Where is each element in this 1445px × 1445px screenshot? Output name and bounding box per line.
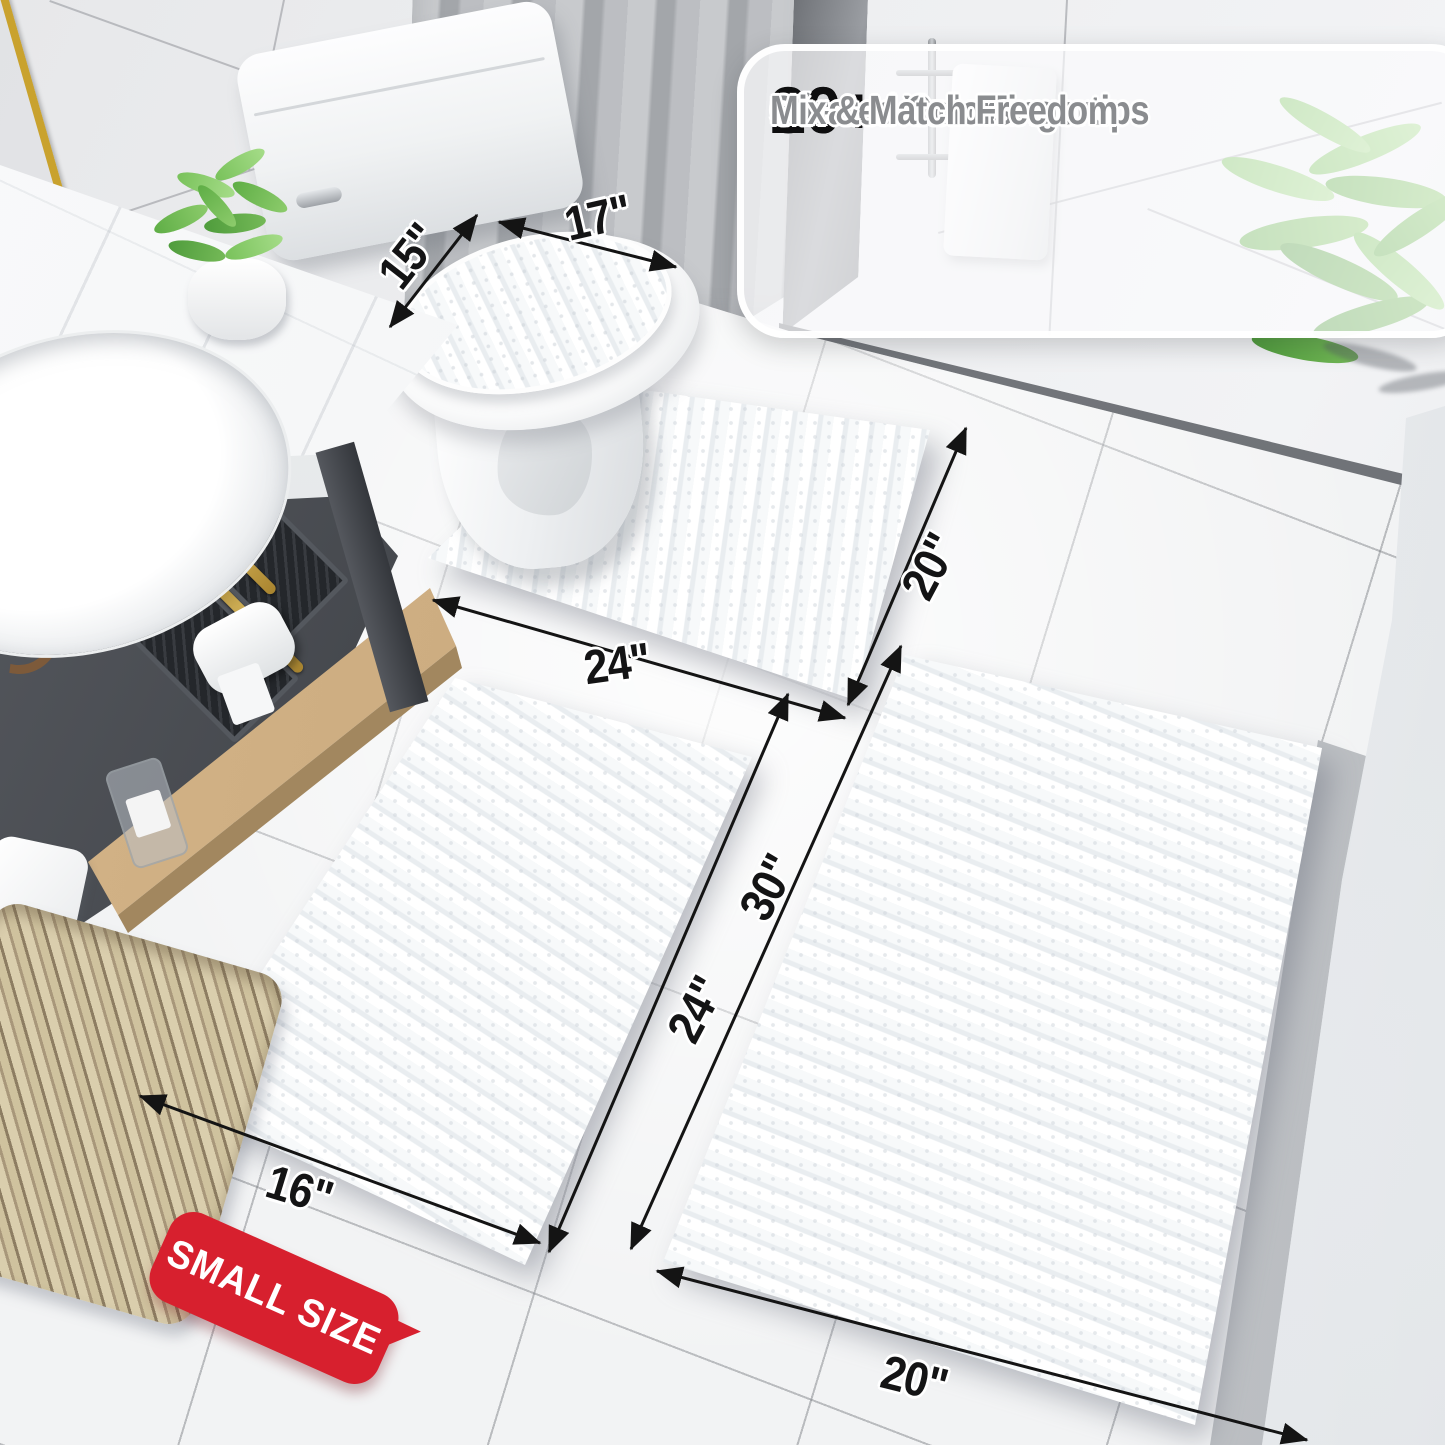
plant-leaf [167,236,227,266]
bottle-label [125,789,172,838]
potted-plant-counter [146,146,306,296]
plant-leaf [151,199,211,239]
plant-leaf [212,143,269,186]
badge-tail [380,1314,422,1353]
plant-leaf [229,176,291,218]
dimension-label-contour-width: 24" [581,637,653,694]
plant-leaf [223,229,286,265]
feature-callout-box: ✓ 20+ Sizes at Your Fingertips ✓ 30+ Cur… [737,44,1445,338]
feature-label: Mix & Match Freedom [770,87,1118,134]
bathroom-product-scene: 15" 17" 24" 20" 30" 24" 16" 20" ✓ 20+ Si… [0,0,1445,1445]
